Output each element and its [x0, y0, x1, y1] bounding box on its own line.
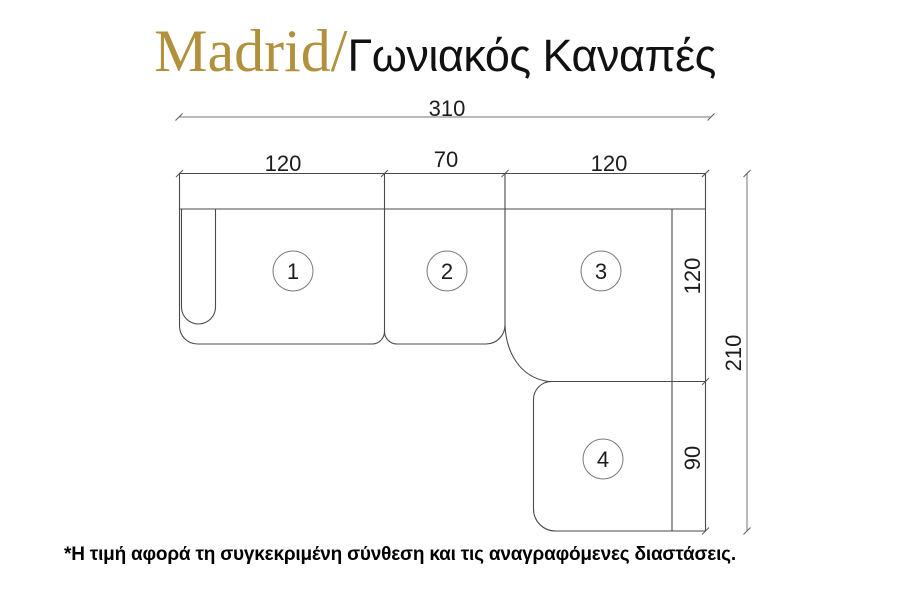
module2-number: 2 [441, 259, 453, 284]
module3-number: 3 [595, 259, 607, 284]
seat2-front-outline [385, 325, 506, 344]
price-disclaimer-note: *Η τιμή αφορά τη συγκεκριμένη σύνθεση κα… [64, 544, 864, 566]
module1-number: 1 [287, 259, 299, 284]
left-armrest-outline [182, 209, 216, 324]
dimension-total-depth: 210 [721, 170, 751, 535]
module4-topleft-corner [534, 382, 552, 400]
dimension-label-segment-right: 120 [591, 151, 628, 176]
dimension-total-width: 310 [176, 96, 715, 121]
dimension-label-segment-mid: 70 [434, 147, 458, 172]
dimension-label-total-depth: 210 [721, 335, 746, 372]
sofa-plan-diagram: 310 120 70 120 [0, 0, 900, 600]
corner-transition-curve [505, 325, 549, 382]
sofa-outline [180, 174, 706, 532]
dimension-label-total-width: 310 [429, 96, 466, 121]
module4-number: 4 [597, 447, 609, 472]
dimension-top-segments: 120 70 120 [176, 147, 709, 177]
dimension-label-segment-left: 120 [265, 151, 302, 176]
dimension-label-right-lower: 90 [680, 446, 705, 470]
module-badges: 1 2 3 4 [273, 251, 623, 479]
dimension-right-segments: 120 90 [680, 170, 709, 535]
dimension-label-right-upper: 120 [680, 258, 705, 295]
module4-bottomleft-corner [534, 509, 556, 531]
page: Madrid/Γωνιακός Καναπές 310 120 70 120 [0, 0, 900, 600]
